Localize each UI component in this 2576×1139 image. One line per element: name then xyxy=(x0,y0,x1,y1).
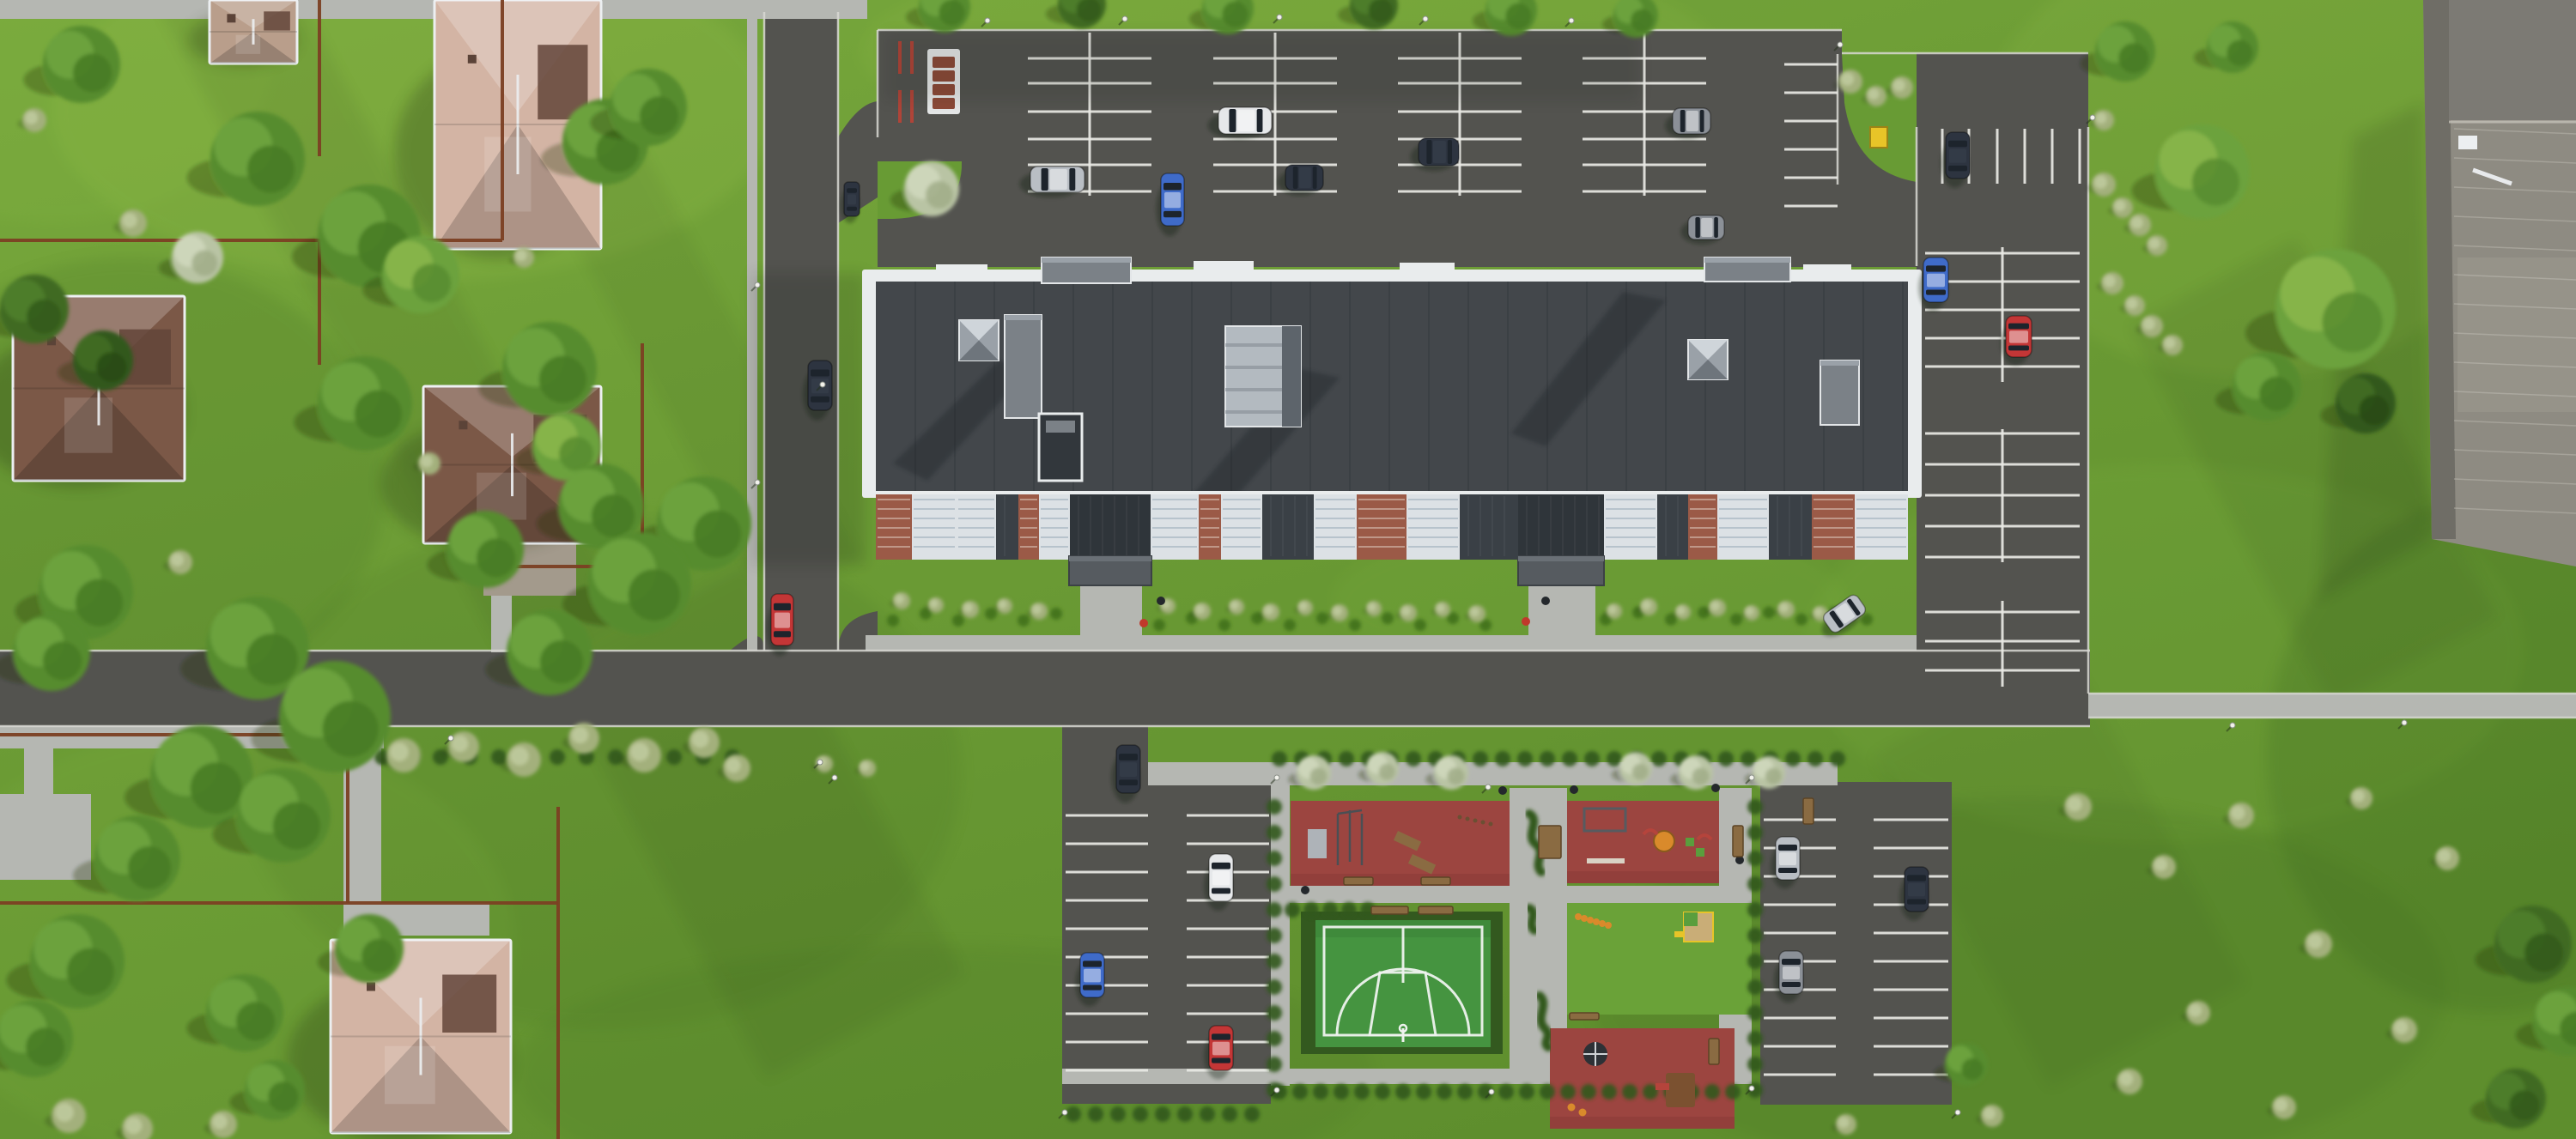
ambient-shadows xyxy=(884,33,1640,101)
utility-box xyxy=(1870,127,1887,148)
aerial-render-stage xyxy=(0,0,2576,1139)
aerial-site-render xyxy=(0,0,2576,1139)
kids-pad-south xyxy=(1550,1028,1735,1129)
kids-pad-north xyxy=(1567,801,1719,883)
